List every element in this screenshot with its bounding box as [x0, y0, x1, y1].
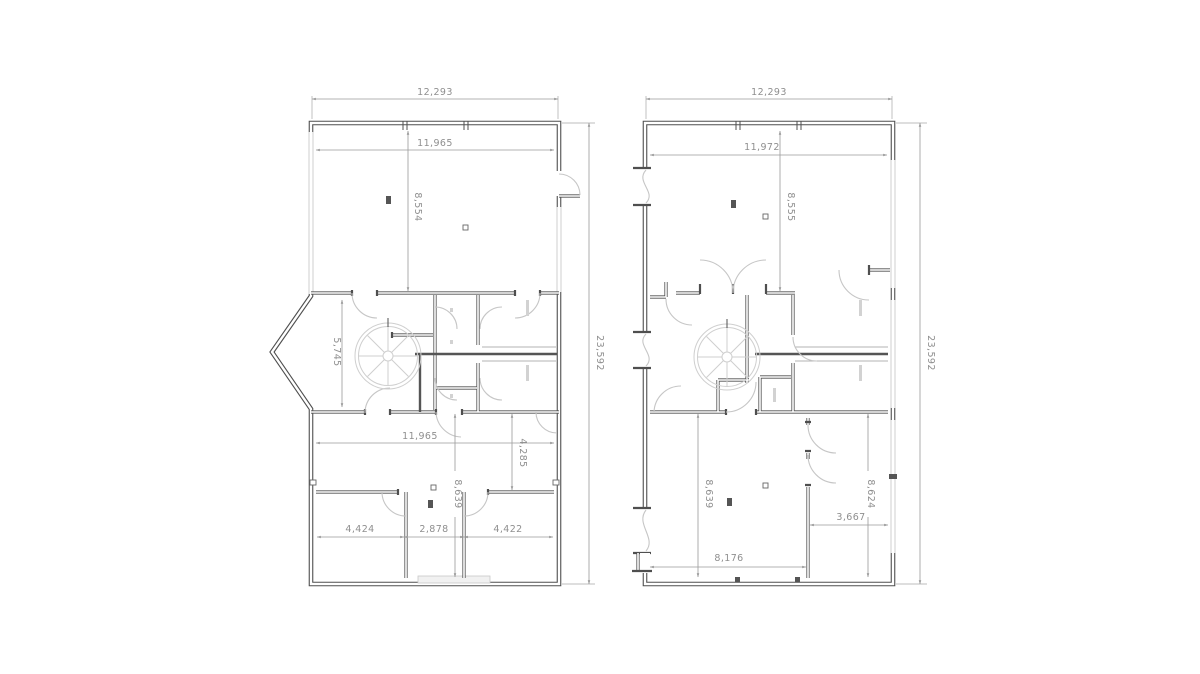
dim-left-total-width: 12,293: [417, 87, 453, 98]
right-floor-plan: 12,293 11,972 8,555 8,639 8,624 3,667 8,…: [632, 87, 936, 584]
dim-left-lower-room-height: 8,639: [452, 479, 463, 508]
floor-plan-sheet: 12,293 11,965 8,554 5,745 11,965 4,285 8…: [0, 0, 1200, 674]
dim-left-bottom-mid: 2,878: [419, 524, 448, 535]
floor-plan-canvas: 12,293 11,965 8,554 5,745 11,965 4,285 8…: [0, 0, 1200, 674]
dim-left-bottom-left: 4,424: [345, 524, 374, 535]
dim-left-room-height-top: 8,554: [412, 192, 423, 221]
dim-right-room-height-top: 8,555: [785, 192, 796, 221]
left-plan-outer-walls: [272, 121, 580, 584]
left-plan-spiral-stair: [355, 318, 421, 389]
dim-left-inner-width-top: 11,965: [417, 138, 453, 149]
dim-right-lower-left-height: 8,639: [703, 479, 714, 508]
dim-right-total-width: 12,293: [751, 87, 787, 98]
dim-right-inner-width-top: 11,972: [744, 142, 780, 153]
left-floor-plan: 12,293 11,965 8,554 5,745 11,965 4,285 8…: [272, 87, 605, 584]
dim-left-total-height: 23,592: [594, 335, 605, 371]
right-plan-interior-walls: [650, 265, 890, 578]
dim-left-bay-height: 5,745: [331, 337, 342, 366]
dim-right-lower-right-height: 8,624: [865, 479, 876, 508]
dim-right-closet-width: 3,667: [836, 512, 865, 523]
dim-left-inner-width-mid: 11,965: [402, 431, 438, 442]
dim-left-right-room-height: 4,285: [517, 438, 528, 467]
right-plan-spiral-stair: [694, 319, 760, 390]
dim-right-total-height: 23,592: [925, 335, 936, 371]
dim-left-bottom-right: 4,422: [493, 524, 522, 535]
dim-right-bottom-width: 8,176: [714, 553, 743, 564]
